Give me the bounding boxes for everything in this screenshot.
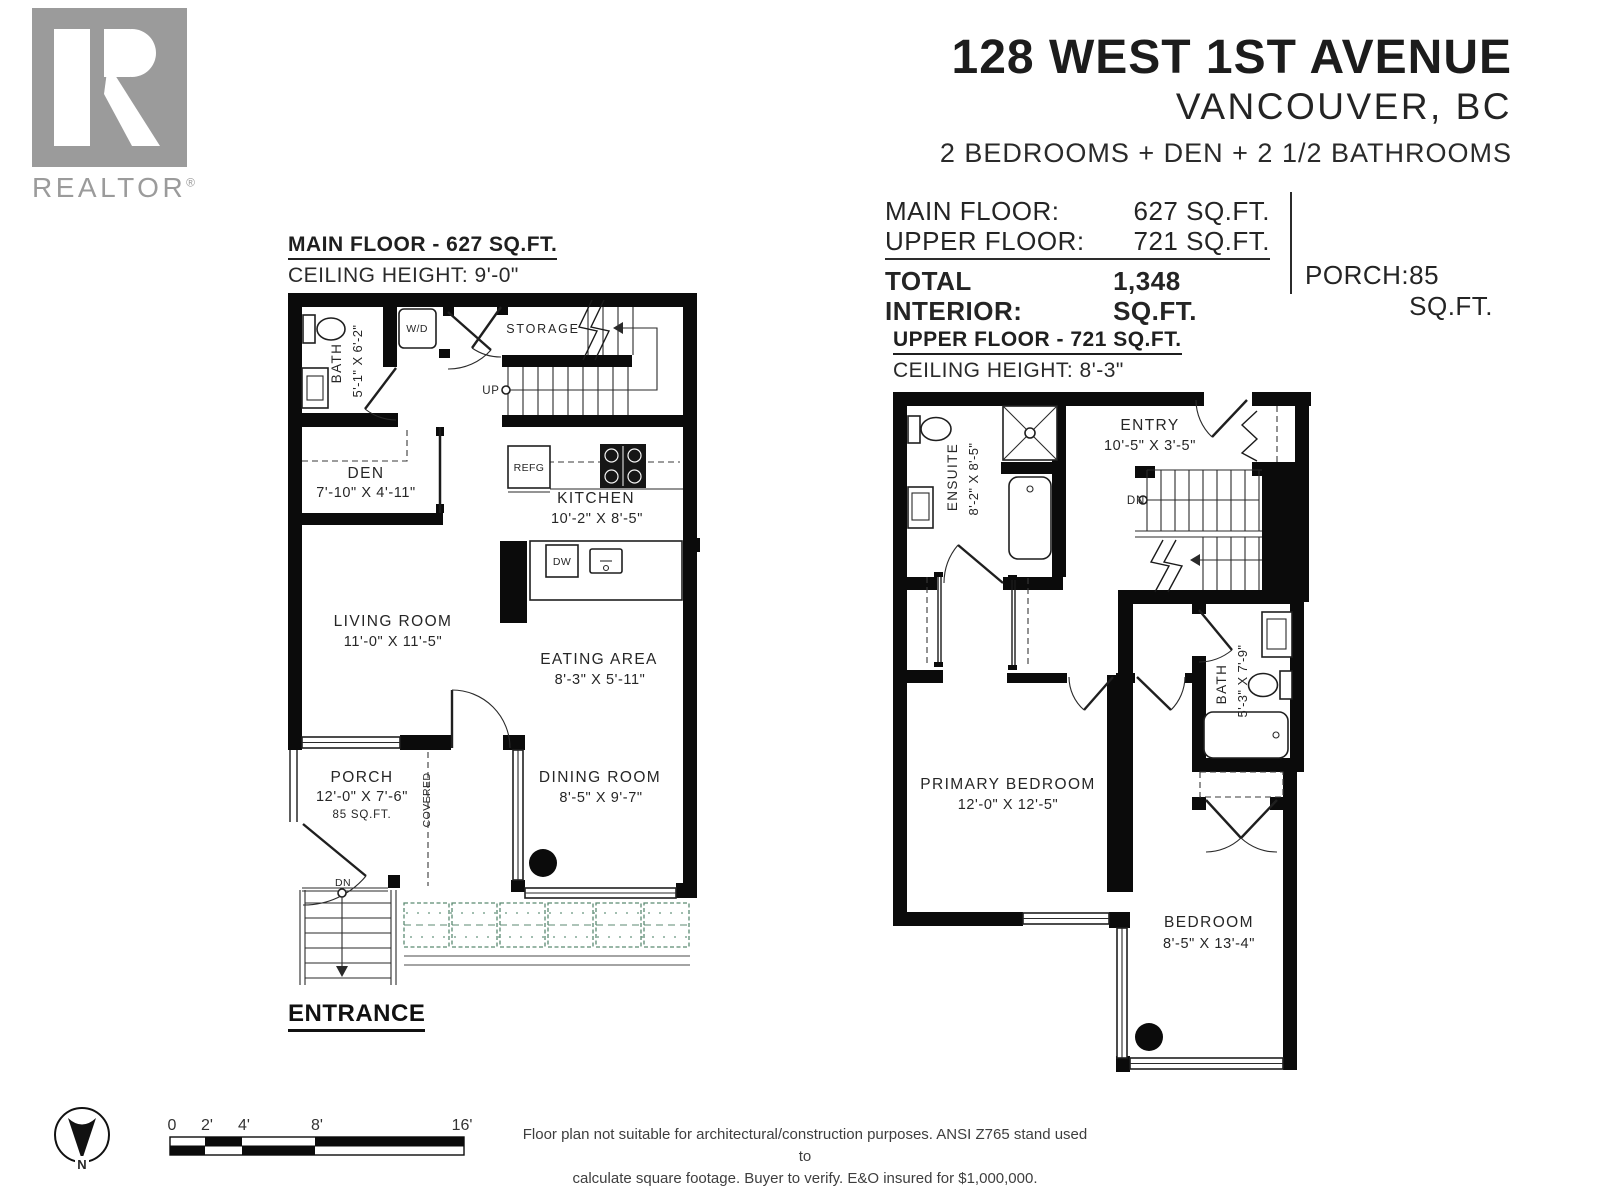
entry-dims: 10'-5" X 3'-5" — [1104, 438, 1196, 454]
wd-label: W/D — [406, 323, 428, 335]
table-row-upper-floor: UPPER FLOOR: 721 SQ.FT. — [885, 226, 1270, 260]
upper-floor-heading: UPPER FLOOR - 721 SQ.FT. CEILING HEIGHT:… — [893, 328, 1182, 383]
total-interior-label: TOTAL INTERIOR: — [885, 266, 1113, 296]
dn-label-upper: DN — [1127, 495, 1145, 507]
upper-floor-ceiling: CEILING HEIGHT: 8'-3" — [893, 359, 1182, 383]
dining-room-dims: 8'-5" X 9'-7" — [559, 790, 642, 806]
bedroom-closet-doors — [1206, 800, 1277, 852]
living-room-label: LIVING ROOM — [334, 613, 453, 630]
den-open-boundary — [302, 427, 407, 461]
table-row-porch: PORCH: 85 SQ.FT. — [1305, 260, 1512, 322]
structural-column — [529, 849, 557, 877]
porch-area: 85 SQ.FT. — [333, 809, 392, 821]
primary-bedroom-dims: 12'-0" X 12'-5" — [958, 797, 1059, 813]
structural-column-upper — [1135, 1023, 1163, 1051]
scale-tick-4: 4' — [238, 1117, 250, 1134]
up-label: UP — [482, 385, 500, 397]
upper-floor-title: UPPER FLOOR - 721 SQ.FT. — [893, 328, 1182, 355]
primary-bedroom-door — [1069, 677, 1113, 710]
scale-tick-16: 16' — [452, 1117, 473, 1134]
stove-icon — [600, 444, 646, 488]
upper-floor-label: UPPER FLOOR: — [885, 226, 1085, 256]
bedroom-bottom-window — [1130, 1058, 1283, 1069]
dining-room-label: DINING ROOM — [539, 769, 661, 786]
table-divider — [1290, 192, 1292, 294]
stairs-down — [1135, 470, 1262, 590]
primary-bedroom-label: PRIMARY BEDROOM — [920, 776, 1095, 793]
kitchen-dims: 10'-2" X 8'-5" — [551, 511, 643, 527]
living-room-dims: 11'-0" X 11'-5" — [344, 634, 442, 650]
dw-label: DW — [553, 556, 571, 568]
main-floor-value: 627 SQ.FT. — [1134, 196, 1271, 226]
porch-side-wall — [290, 750, 297, 822]
bedroom-bathroom-summary: 2 BEDROOMS + DEN + 2 1/2 BATHROOMS — [940, 138, 1512, 169]
dining-left-window — [513, 750, 523, 880]
scale-tick-8: 8' — [311, 1117, 323, 1134]
scale-bar: 0 2' 4' 8' 16' — [163, 1114, 475, 1166]
registered-mark: ® — [186, 176, 195, 190]
table-row-total-interior: TOTAL INTERIOR: 1,348 SQ.FT. — [885, 266, 1270, 296]
kitchen-island — [530, 541, 682, 600]
hall-door — [1137, 677, 1185, 710]
entry-label: ENTRY — [1120, 417, 1179, 434]
scale-tick-0: 0 — [168, 1117, 177, 1134]
realtor-wordmark: REALTOR® — [32, 172, 192, 204]
bedroom-left-window — [1117, 928, 1127, 1058]
disclaimer-line-2: calculate square footage. Buyer to verif… — [520, 1168, 1090, 1190]
porch-dims: 12'-0" X 7'-6" — [316, 789, 408, 805]
bath-label: BATH — [329, 343, 344, 384]
storage-label: STORAGE — [506, 322, 580, 336]
main-floor-plan: STORAGE UP W/D REFG DW BATH 5'-1" X 6'-2… — [280, 286, 707, 1026]
scale-tick-2: 2' — [201, 1117, 213, 1134]
bedroom-closet-shelf — [1200, 772, 1283, 797]
porch-top-window — [302, 737, 400, 748]
porch-label: PORCH: — [1305, 260, 1409, 322]
upper-bath-label: BATH — [1214, 664, 1229, 705]
upper-floor-plan: ENSUITE 8'-2" X 8'-5" ENTRY 10'-5" X 3'-… — [885, 385, 1315, 1085]
den-label: DEN — [348, 465, 385, 482]
sink-icon — [302, 368, 328, 408]
upper-bath-dims: 5'-3" X 7'-9" — [1235, 645, 1250, 718]
main-floor-title: MAIN FLOOR - 627 SQ.FT. — [288, 233, 557, 260]
front-entry-door — [452, 690, 510, 748]
bedroom-dims: 8'-5" X 13'-4" — [1163, 936, 1255, 952]
bath-dims: 5'-1" X 6'-2" — [350, 325, 365, 398]
storage-door — [472, 307, 501, 357]
dn-label: DN — [335, 877, 351, 889]
disclaimer-text: Floor plan not suitable for architectura… — [520, 1124, 1090, 1190]
refg-label: REFG — [514, 462, 545, 474]
ground-lines — [404, 956, 690, 965]
ensuite-label: ENSUITE — [945, 443, 960, 511]
bifold-closet-door — [1242, 411, 1257, 461]
ensuite-tub-icon — [1009, 477, 1051, 559]
realtor-logo — [32, 8, 187, 167]
compass-n-label: N — [77, 1157, 86, 1172]
ensuite-sink-icon — [908, 487, 933, 528]
upper-bath-door — [1199, 610, 1232, 662]
page-title-address: 128 WEST 1ST AVENUE — [952, 30, 1512, 85]
kitchen-label: KITCHEN — [557, 490, 635, 507]
scale-bar-blocks — [170, 1137, 464, 1155]
upper-bath-sink-icon — [1262, 612, 1292, 657]
north-arrow-icon: N — [50, 1104, 116, 1176]
eating-area-dims: 8'-3" X 5'-11" — [555, 672, 646, 688]
ensuite-dims: 8'-2" X 8'-5" — [966, 443, 981, 516]
toilet-icon — [303, 315, 345, 343]
covered-label: COVERED — [421, 773, 433, 828]
primary-bottom-window — [1023, 913, 1109, 924]
realtor-brand-text: REALTOR — [32, 172, 186, 203]
den-dims: 7'-10" X 4'-11" — [316, 485, 416, 501]
shower-icon — [1003, 406, 1057, 460]
disclaimer-line-1: Floor plan not suitable for architectura… — [520, 1124, 1090, 1168]
hedge-row — [404, 903, 689, 947]
table-row-main-floor: MAIN FLOOR: 627 SQ.FT. — [885, 196, 1270, 226]
ensuite-toilet-icon — [908, 416, 951, 443]
porch-room-label: PORCH — [331, 769, 394, 786]
main-floor-label: MAIN FLOOR: — [885, 196, 1060, 226]
area-summary-table: MAIN FLOOR: 627 SQ.FT. UPPER FLOOR: 721 … — [885, 196, 1270, 296]
main-floor-ceiling: CEILING HEIGHT: 9'-0" — [288, 264, 557, 288]
main-floor-heading: MAIN FLOOR - 627 SQ.FT. CEILING HEIGHT: … — [288, 233, 557, 288]
dining-bottom-window — [525, 888, 676, 898]
entrance-stairs — [300, 888, 396, 985]
total-interior-value: 1,348 SQ.FT. — [1113, 266, 1270, 296]
bedroom-label: BEDROOM — [1164, 914, 1254, 931]
eating-area-label: EATING AREA — [540, 651, 658, 668]
island-sink-icon — [590, 549, 622, 573]
upper-bath-toilet-icon — [1249, 671, 1293, 699]
porch-value: 85 SQ.FT. — [1409, 260, 1512, 322]
entrance-label: ENTRANCE — [288, 1000, 425, 1032]
upper-floor-value: 721 SQ.FT. — [1134, 226, 1271, 256]
stairs-break-mark-upper — [1151, 540, 1182, 592]
page-subtitle-city: VANCOUVER, BC — [1176, 86, 1512, 128]
porch-door — [303, 824, 366, 905]
ensuite-door — [944, 545, 1003, 583]
stairs-break-mark — [579, 300, 609, 360]
wd-closet-door — [448, 312, 491, 369]
upper-bath-tub-icon — [1204, 712, 1288, 758]
bath-door — [365, 368, 396, 420]
